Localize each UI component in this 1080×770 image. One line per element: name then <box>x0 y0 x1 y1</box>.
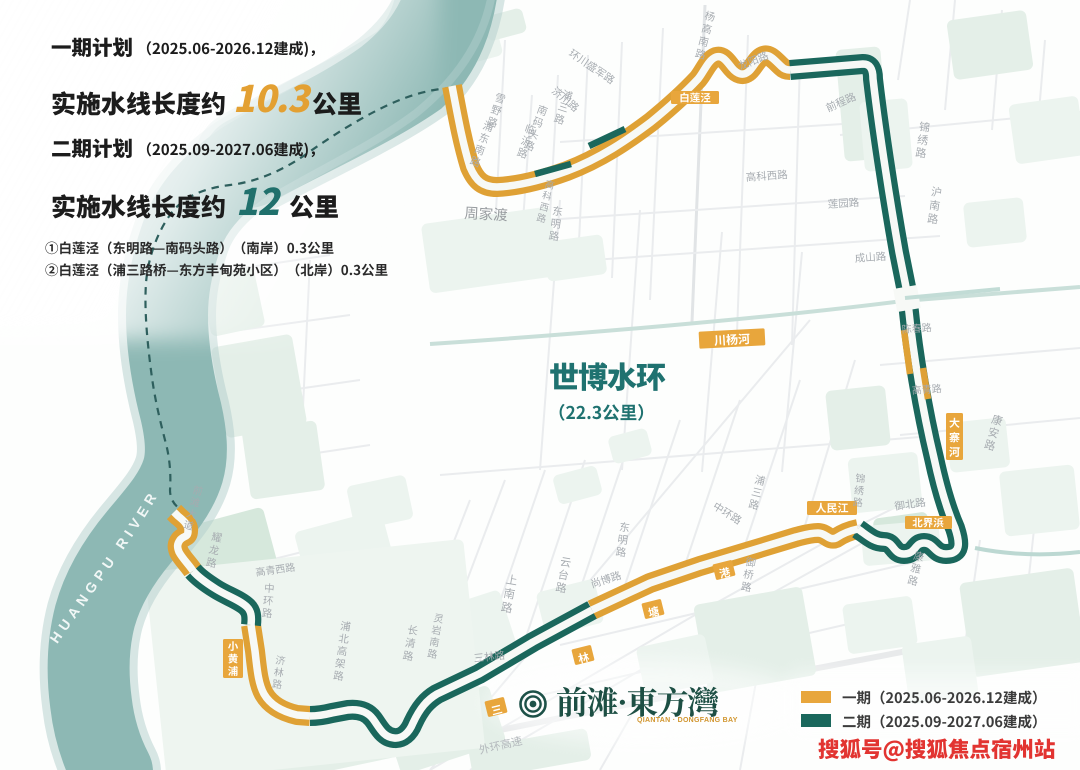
svg-text:QIANTAN · DONGFANG BAY: QIANTAN · DONGFANG BAY <box>637 717 738 724</box>
